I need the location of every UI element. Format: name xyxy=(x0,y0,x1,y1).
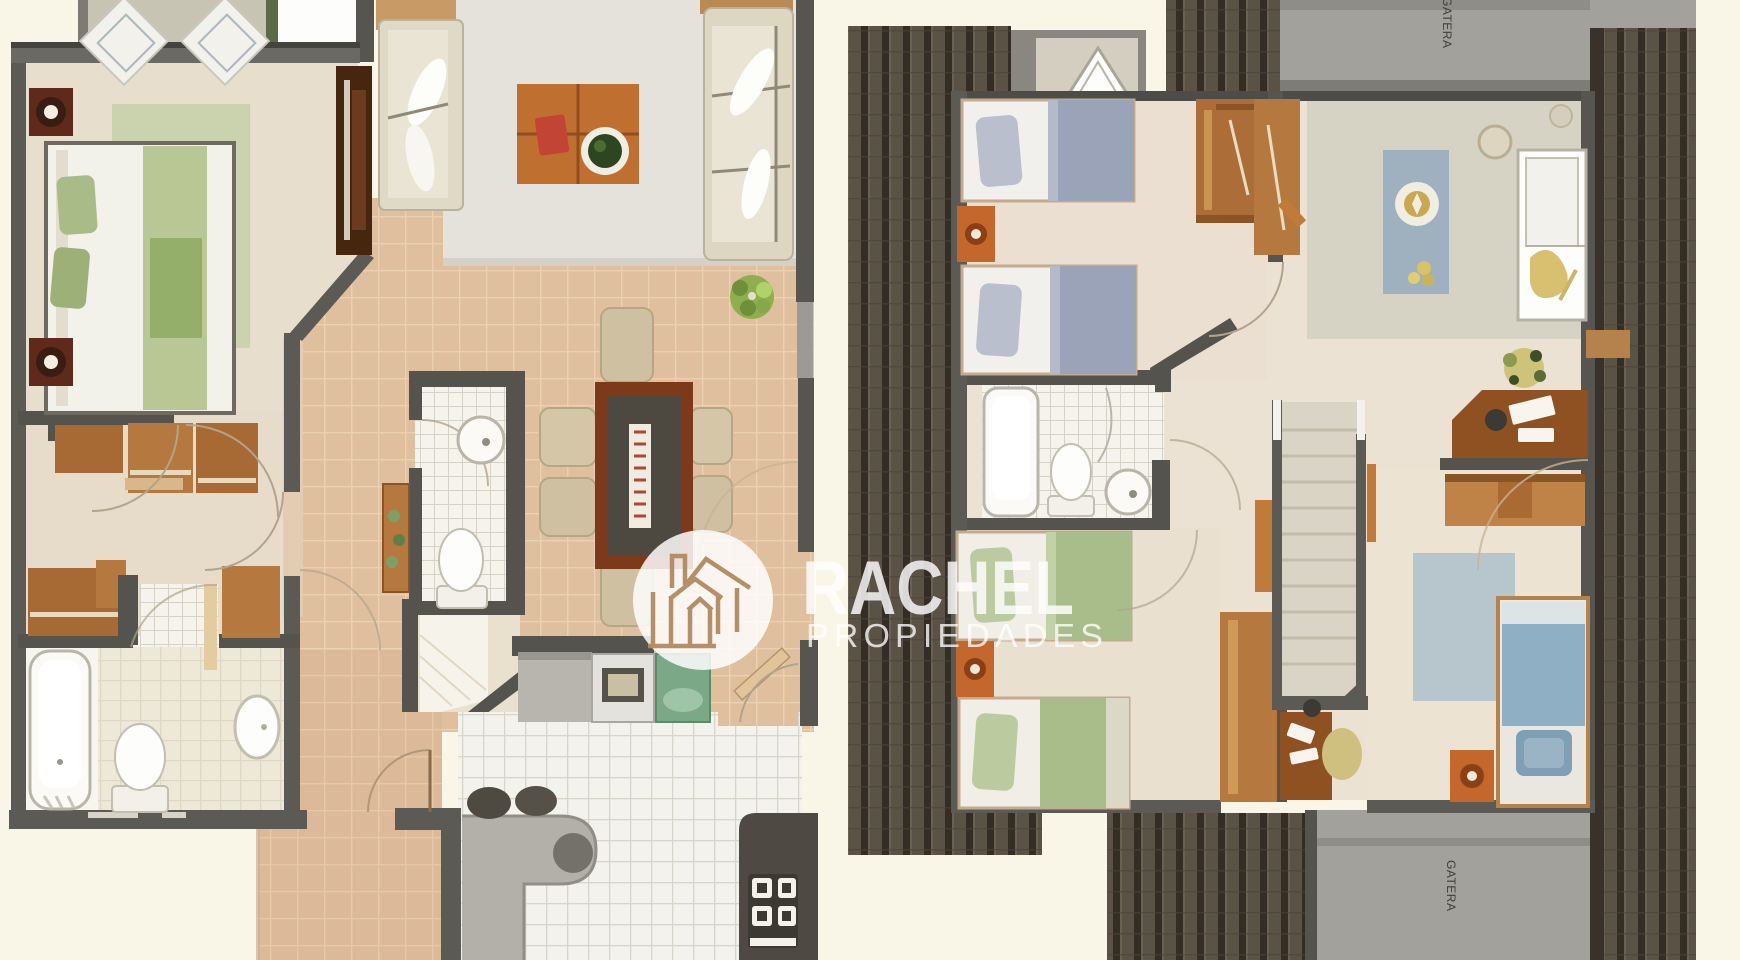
svg-text:GATERA: GATERA xyxy=(1444,860,1458,911)
svg-text:PROPIEDADES: PROPIEDADES xyxy=(806,617,1108,654)
svg-text:GATERA: GATERA xyxy=(1440,0,1454,48)
